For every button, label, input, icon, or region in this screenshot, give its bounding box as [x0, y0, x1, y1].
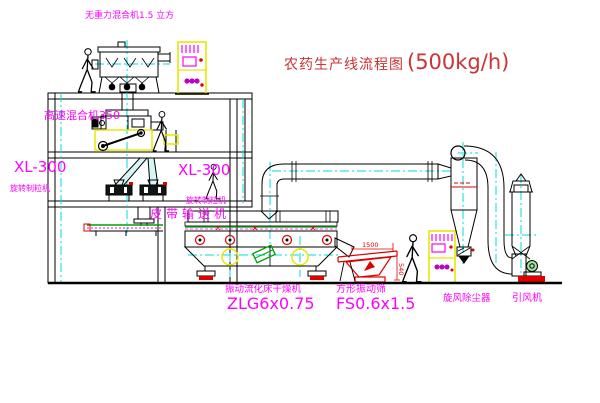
granulator-right-name-label: 旋转制粒机 [186, 197, 226, 205]
granulator-right-model-label: XL-300 [178, 163, 230, 178]
gravity-mixer-label: 无重力混合机1.5 立方 [85, 12, 174, 21]
y-duct [114, 158, 158, 186]
drawing-title: 农药生产线流程图 (500kg/h) [284, 50, 509, 74]
gravity-free-mixer [92, 42, 170, 110]
cyclone-label: 旋风除尘器 [443, 294, 491, 304]
screen-model-label: FS0.6x1.5 [336, 296, 415, 312]
dryer-model-label: ZLG6x0.75 [227, 296, 315, 312]
fan-label: 引风机 [512, 294, 542, 304]
granulator-left-model-label: XL-300 [14, 160, 66, 175]
person-roof [78, 49, 95, 92]
control-cabinet-ground [429, 231, 455, 283]
person-ground [403, 235, 421, 282]
vibrating-screen: 1500 540 [338, 241, 405, 282]
belt-conveyor-label: 皮带输送机 [150, 208, 230, 220]
title-capacity: (500kg/h) [407, 50, 509, 74]
high-speed-mixer-label: 高速混合机350 [44, 110, 120, 121]
granulator-left-name-label: 旋转制粒机 [10, 185, 50, 193]
screen-length-dim: 1500 [362, 241, 379, 249]
title-chinese: 农药生产线流程图 [284, 54, 404, 74]
pesticide-production-line-drawing: 1500 540 [0, 0, 600, 403]
control-cabinet-roof [175, 42, 209, 94]
exhaust-duct [260, 161, 451, 211]
screen-height-dim: 540 [397, 263, 405, 275]
